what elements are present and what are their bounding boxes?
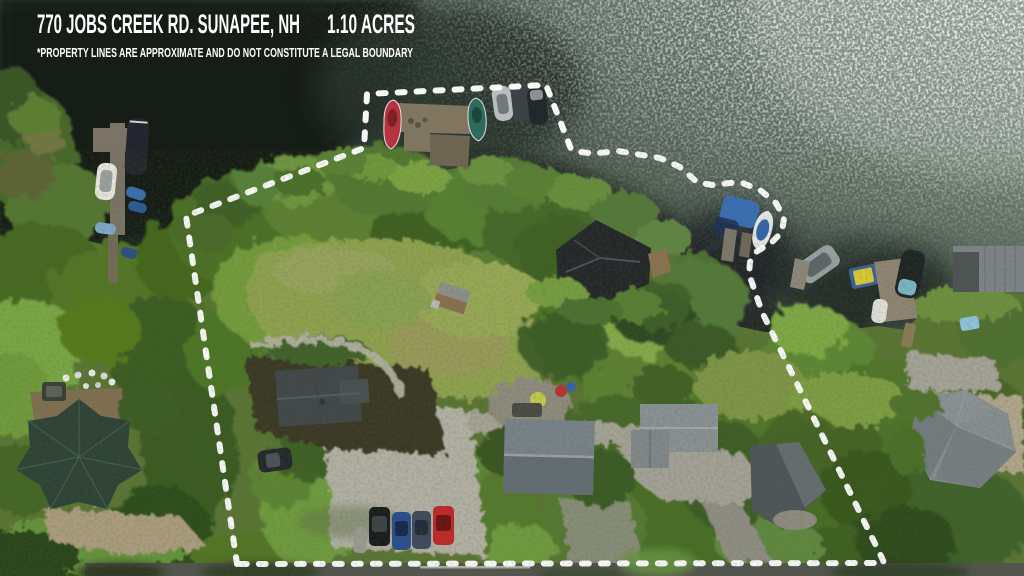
svg-text:770 JOBS CREEK RD. SUNAPEE, NH: 770 JOBS CREEK RD. SUNAPEE, NH xyxy=(37,9,300,39)
svg-text:1.10 ACRES: 1.10 ACRES xyxy=(327,9,415,39)
svg-text:*PROPERTY LINES ARE APPROXIMAT: *PROPERTY LINES ARE APPROXIMATE AND DO N… xyxy=(37,45,413,60)
